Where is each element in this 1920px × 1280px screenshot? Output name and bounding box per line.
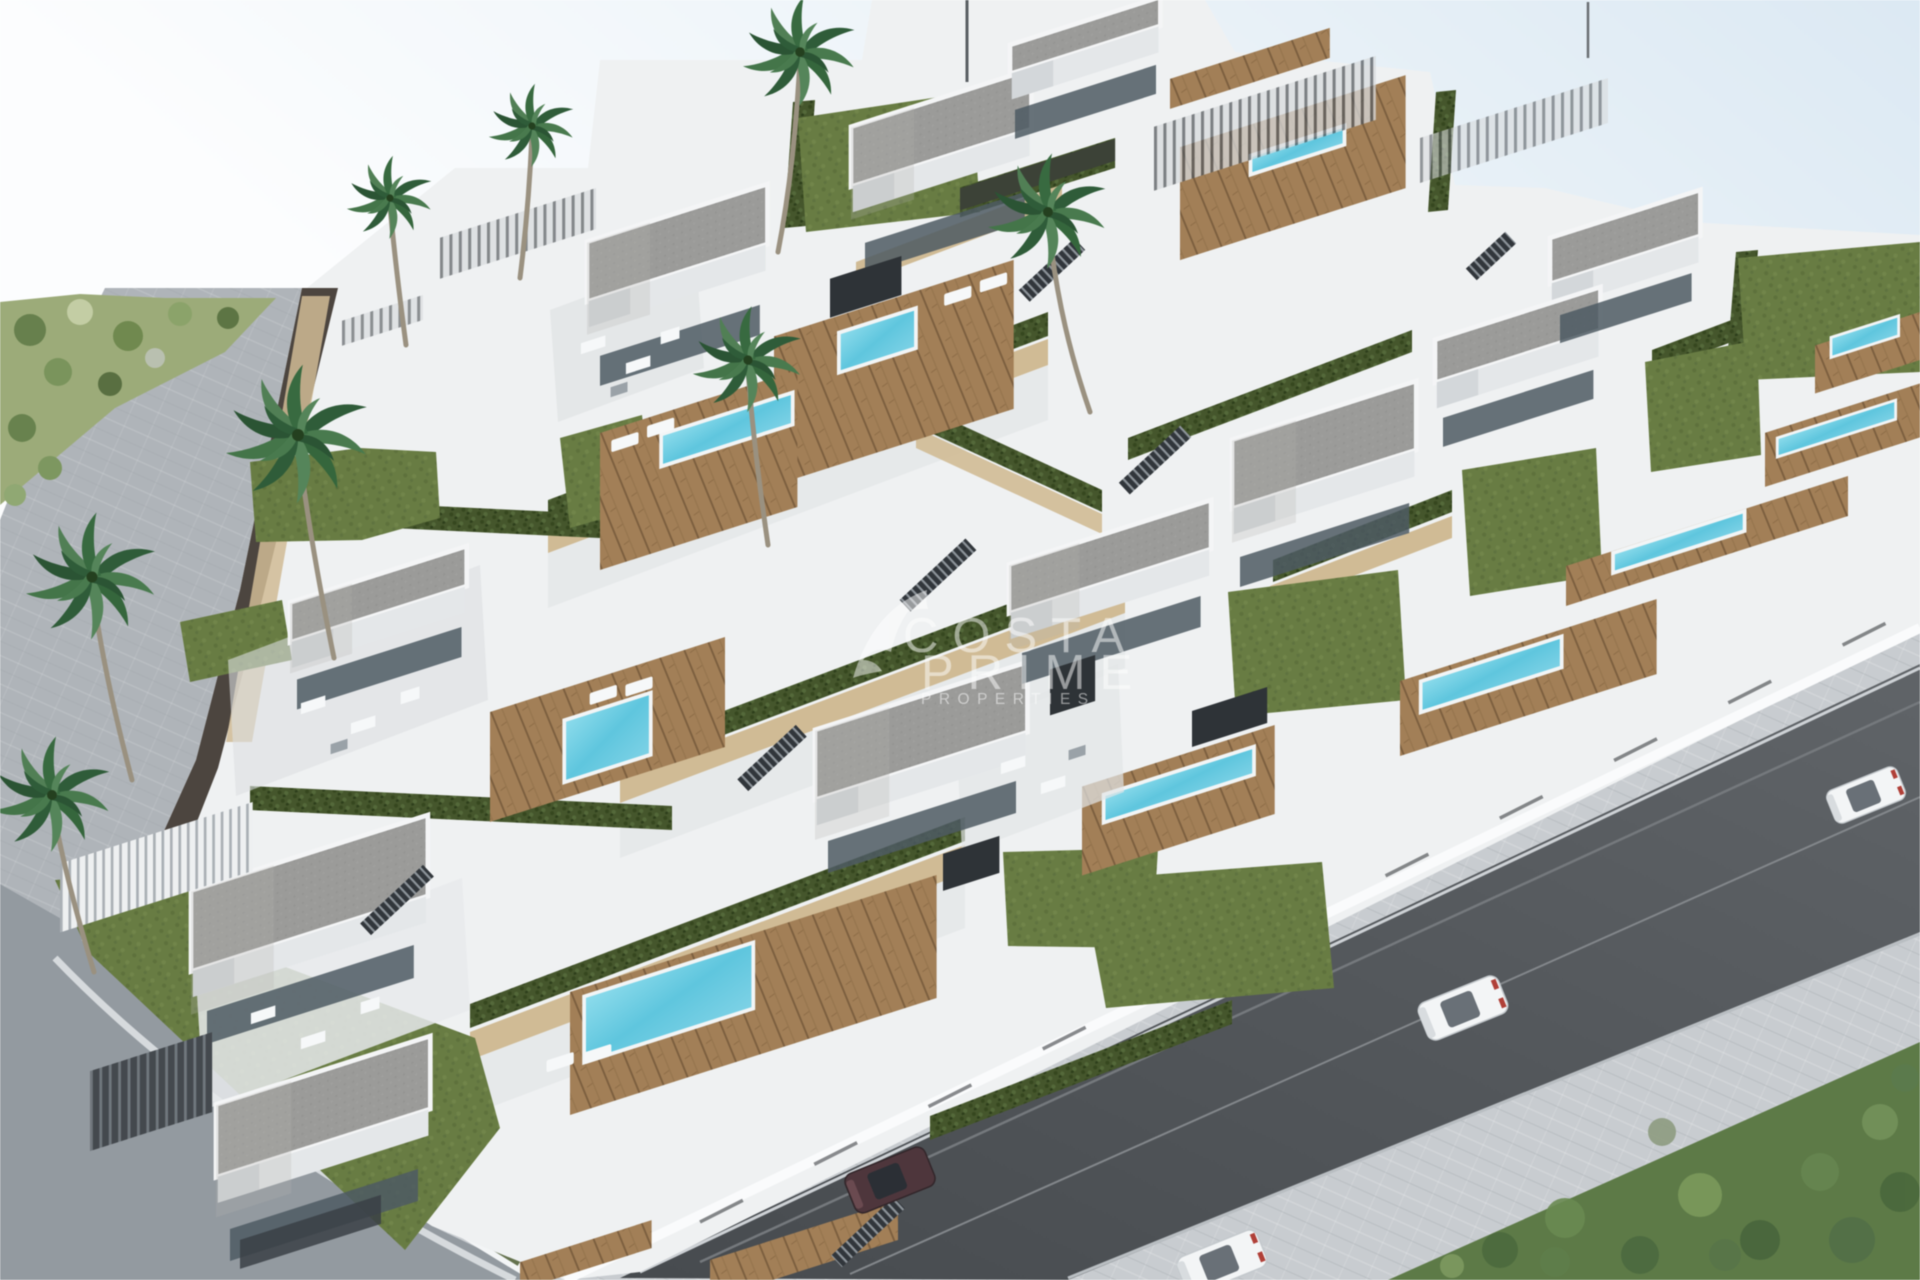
svg-text:PROPERTIES: PROPERTIES — [921, 691, 1096, 708]
